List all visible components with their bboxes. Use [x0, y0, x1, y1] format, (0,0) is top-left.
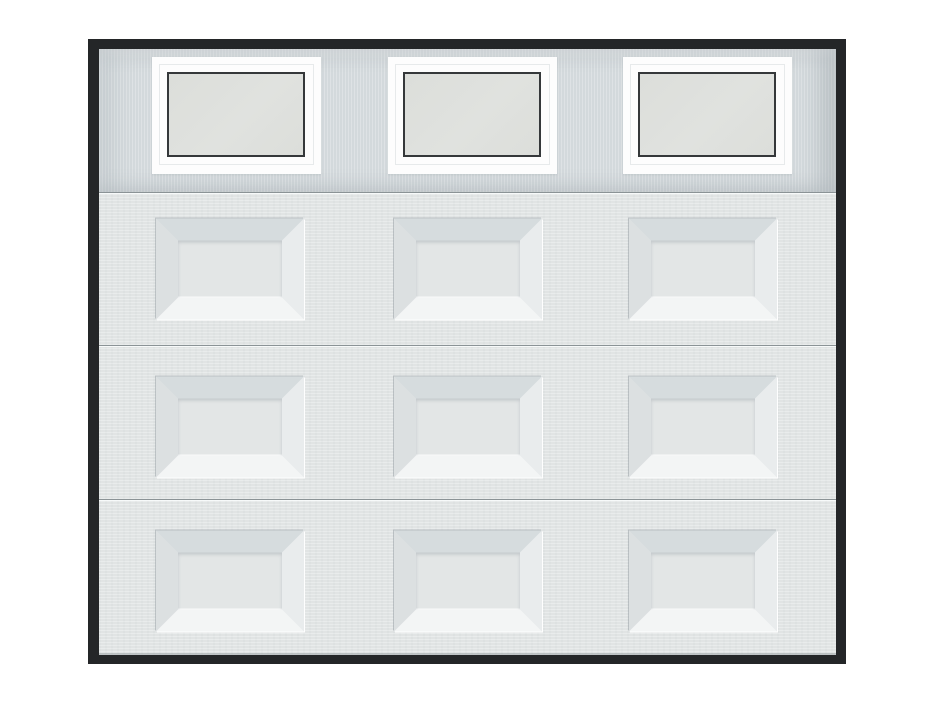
- window: [623, 57, 792, 174]
- window: [388, 57, 557, 174]
- window-glass: [638, 72, 776, 157]
- door-body: [99, 49, 836, 655]
- raised-panel: [629, 530, 777, 631]
- raised-panel: [394, 530, 542, 631]
- window-glass: [167, 72, 305, 157]
- raised-panel: [156, 530, 304, 631]
- raised-panel: [394, 376, 542, 477]
- window: [152, 57, 321, 174]
- raised-panel: [156, 219, 304, 320]
- window-glass: [403, 72, 541, 157]
- raised-panel: [156, 376, 304, 477]
- panel-section: [99, 499, 836, 655]
- raised-panel: [629, 219, 777, 320]
- panel-section: [99, 345, 836, 499]
- panel-section: [99, 192, 836, 345]
- door-frame: [88, 39, 846, 664]
- raised-panel: [394, 219, 542, 320]
- raised-panel: [629, 376, 777, 477]
- window-section: [99, 49, 836, 192]
